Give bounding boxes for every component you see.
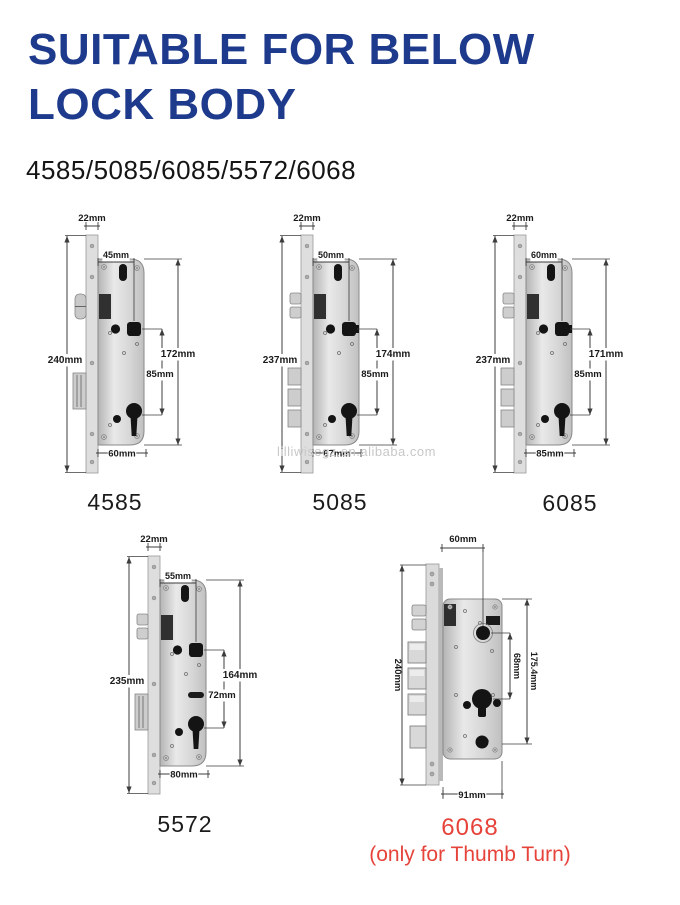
- latch-bolt: [503, 293, 514, 304]
- dimension-label: 240mm: [48, 355, 83, 366]
- faceplate: [426, 564, 439, 785]
- dimension-label: 235mm: [110, 676, 145, 687]
- dimension-label: 22mm: [293, 213, 320, 224]
- page-title-line1: SUITABLE FOR BELOW: [28, 22, 535, 77]
- top-slot-hole: [181, 585, 189, 602]
- cylinder-hole: [472, 689, 492, 709]
- lock-label-5085: 5085: [260, 489, 420, 516]
- latch-mechanism: [527, 294, 539, 319]
- dimension-label: 60mm: [108, 449, 135, 460]
- lock-diagram-5085: 22mm237mm50mm85mm174mm67mm: [255, 213, 465, 483]
- latch-mechanism: [99, 294, 111, 319]
- latch-bolt: [290, 293, 301, 304]
- dimension-label: 68mm: [512, 653, 522, 679]
- bottom-hole: [476, 736, 489, 749]
- lock-figure-5085: 22mm237mm50mm85mm174mm67mm: [255, 213, 465, 483]
- latch-bolt: [412, 605, 426, 616]
- stop-slot: [486, 616, 500, 625]
- lock-label-5572: 5572: [100, 811, 270, 838]
- deadbolt-face: [410, 696, 424, 702]
- deadbolt: [501, 368, 514, 385]
- deadbolt: [73, 373, 86, 409]
- lock-diagram-6085: 22mm237mm60mm85mm171mm85mm: [468, 213, 678, 483]
- deadbolt: [288, 368, 301, 385]
- dimension-label: 80mm: [170, 770, 197, 781]
- latch-bolt: [503, 307, 514, 318]
- lock-diagram-5572: 22mm235mm55mm72mm164mm80mm: [102, 534, 312, 804]
- deadbolt: [135, 694, 148, 730]
- faceplate: [514, 235, 526, 473]
- dimension-label: 237mm: [476, 355, 511, 366]
- dimension-label: 22mm: [140, 534, 167, 545]
- dimension-label: 240mm: [392, 659, 403, 692]
- dimension-label: 172mm: [161, 349, 196, 360]
- deadbolt: [501, 410, 514, 427]
- page-title-line2: LOCK BODY: [28, 77, 535, 132]
- lock-label-6068-note: (only for Thumb Turn): [340, 842, 600, 868]
- top-slot-hole: [547, 264, 555, 281]
- dimension-label: 22mm: [506, 213, 533, 224]
- dimension-label: 237mm: [263, 355, 298, 366]
- dimension-label: 85mm: [361, 369, 388, 380]
- latch-bolt: [290, 307, 301, 318]
- faceplate: [301, 235, 313, 473]
- lock-label-6068: 6068: [340, 814, 600, 842]
- deadbolt-face: [410, 670, 424, 676]
- lock-label-4585: 4585: [40, 489, 190, 516]
- lock-figure-5572: 22mm235mm55mm72mm164mm80mm: [102, 534, 312, 804]
- page-title: SUITABLE FOR BELOW LOCK BODY: [28, 22, 535, 132]
- dimension-label: 85mm: [146, 369, 173, 380]
- deadbolt: [410, 726, 426, 748]
- faceplate: [86, 235, 98, 473]
- handle-hole: [111, 324, 120, 333]
- dimension-label: 91mm: [458, 790, 485, 801]
- dimension-label: 164mm: [223, 670, 258, 681]
- watermark: lilliwisegz.en.alibaba.com: [277, 444, 436, 459]
- dimension-label: 60mm: [531, 250, 557, 260]
- dimension-label: 175.4mm: [529, 652, 539, 691]
- deadbolt-face: [410, 644, 424, 650]
- dimension-label: 85mm: [574, 369, 601, 380]
- latch-bolt: [137, 628, 148, 639]
- dimension-label: 55mm: [165, 571, 191, 581]
- top-slot-hole: [334, 264, 342, 281]
- dimension-label: 171mm: [589, 349, 624, 360]
- handle-hole: [539, 324, 548, 333]
- lock-figure-6085: 22mm237mm60mm85mm171mm85mm: [468, 213, 678, 483]
- model-numbers: 4585/5085/6085/5572/6068: [26, 155, 356, 186]
- lock-figure-4585: 22mm240mm45mm85mm172mm60mm: [40, 213, 250, 483]
- top-slot-hole: [119, 264, 127, 281]
- spindle-hole: [127, 322, 141, 336]
- handle-hole: [326, 324, 335, 333]
- lock-case: [160, 580, 206, 766]
- deadbolt: [501, 389, 514, 406]
- dimension-label: 174mm: [376, 349, 411, 360]
- latch-mechanism: [161, 615, 173, 640]
- spindle-hole: [189, 643, 203, 657]
- dimension-label: 85mm: [536, 449, 563, 460]
- deadbolt: [288, 410, 301, 427]
- deadbolt: [288, 389, 301, 406]
- latch-bolt: [412, 619, 426, 630]
- lock-label-6068-block: 6068 (only for Thumb Turn): [340, 814, 600, 868]
- dimension-label: 50mm: [318, 250, 344, 260]
- spindle-hole: [476, 626, 490, 640]
- dimension-label: 45mm: [103, 250, 129, 260]
- lock-figure-6068: 60mm240mm68mm175.4mm91mm: [370, 527, 600, 807]
- lock-diagram-4585: 22mm240mm45mm85mm172mm60mm: [40, 213, 250, 483]
- handle-hole: [173, 645, 182, 654]
- dimension-label: 22mm: [78, 213, 105, 224]
- latch-bolt: [137, 614, 148, 625]
- faceplate: [148, 556, 160, 794]
- dimension-label: 60mm: [449, 534, 476, 545]
- latch-mechanism: [314, 294, 326, 319]
- page: SUITABLE FOR BELOW LOCK BODY 4585/5085/6…: [0, 0, 680, 905]
- lock-diagram-6068: 60mm240mm68mm175.4mm91mm: [370, 527, 600, 807]
- faceplate-edge: [439, 568, 443, 781]
- lock-label-6085: 6085: [480, 490, 660, 517]
- dimension-label: 72mm: [208, 690, 235, 701]
